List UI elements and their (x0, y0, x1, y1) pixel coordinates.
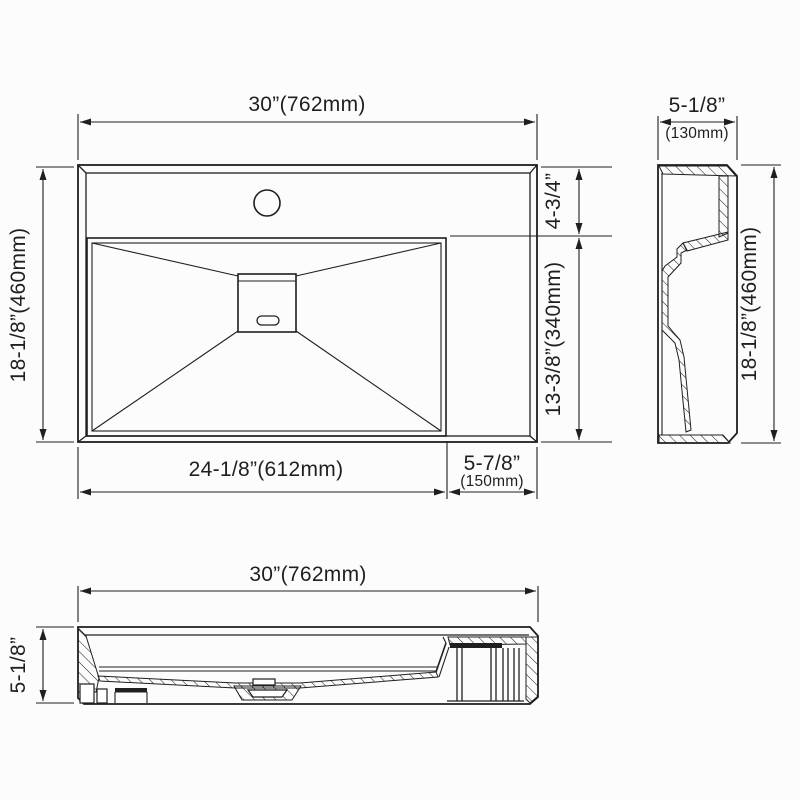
side-view: 5-1/8” (130mm) 18-1/8”(460mm) (658, 94, 781, 443)
dim-front-width: 30”(762mm) (78, 563, 538, 622)
front-left-wall-section (78, 628, 99, 692)
side-bowl-wall-section (662, 243, 691, 432)
dim-label-side-width-in: 5-1/8” (669, 94, 726, 117)
dim-label-bowl-width: 24-1/8”(612mm) (189, 458, 344, 481)
dim-label-side-width-mm: (130mm) (665, 125, 728, 142)
faucet-hole (254, 190, 280, 216)
extension-lines (450, 167, 612, 442)
dim-label-deck-width-in: 5-7/8” (464, 452, 521, 475)
front-left-foot-1 (80, 684, 94, 703)
dim-label-front-height: 5-1/8” (7, 637, 30, 694)
dim-top-overall-width: 30”(762mm) (78, 93, 537, 160)
extension-lines (36, 167, 74, 442)
drain-recess (238, 274, 296, 332)
bowl-inner-edge (92, 243, 441, 431)
dim-side-width: 5-1/8” (130mm) (658, 94, 737, 160)
front-bowl-backwall-lines (99, 667, 437, 671)
front-left-foot-2 (97, 689, 107, 703)
front-right-wall-section (526, 637, 538, 703)
sink-dimension-drawing: 30”(762mm) 18-1/8”(460mm) 4-3/4” 13-3/8”… (0, 0, 800, 800)
dim-top-right-depths: 4-3/4” 13-3/8”(340mm) (450, 167, 612, 442)
front-bowl-right-wall (436, 643, 446, 672)
top-view-outer-rim (78, 165, 537, 442)
side-deck-to-bowl-section (683, 232, 728, 251)
dim-label-front-width: 30”(762mm) (249, 563, 366, 586)
dim-top-overall-depth: 18-1/8”(460mm) (7, 167, 74, 442)
front-overflow-slot-left (115, 688, 147, 693)
dim-label-bowl-depth: 13-3/8”(340mm) (542, 262, 565, 417)
dim-side-height: 18-1/8”(460mm) (738, 165, 781, 443)
dim-label-overall-depth: 18-1/8”(460mm) (7, 228, 30, 383)
front-drain-bump (253, 679, 275, 685)
dim-top-bottom-widths: 24-1/8”(612mm) 5-7/8” (150mm) (78, 441, 537, 499)
side-bottom-rim-section (659, 435, 730, 443)
dim-label-faucet-deck-depth: 4-3/4” (542, 173, 565, 230)
dim-front-height: 5-1/8” (7, 627, 74, 703)
bowl-outer-edge (87, 238, 446, 436)
extension-lines (36, 627, 74, 703)
dim-label-deck-width-mm: (150mm) (460, 473, 523, 490)
front-left-rib-lines (115, 692, 147, 703)
bowl-slope-lines (92, 243, 441, 431)
rim-corner-chamfers (78, 165, 537, 442)
drain-slot (257, 316, 279, 325)
side-faucet-deck-section (719, 176, 728, 237)
top-view: 30”(762mm) 18-1/8”(460mm) 4-3/4” 13-3/8”… (7, 93, 612, 499)
front-drain-boss-inner (248, 690, 287, 697)
dim-label-overall-width: 30”(762mm) (248, 93, 365, 116)
extension-lines (78, 114, 537, 160)
dim-label-side-height: 18-1/8”(460mm) (738, 227, 761, 382)
front-overflow-slot-right (450, 643, 502, 648)
front-deck-ribs (447, 648, 524, 701)
side-top-deck-section (659, 166, 736, 176)
top-view-inner-rim (86, 173, 530, 436)
front-view: 30”(762mm) 5-1/8” (7, 563, 538, 704)
technical-drawing-canvas: 30”(762mm) 18-1/8”(460mm) 4-3/4” 13-3/8”… (0, 0, 800, 800)
